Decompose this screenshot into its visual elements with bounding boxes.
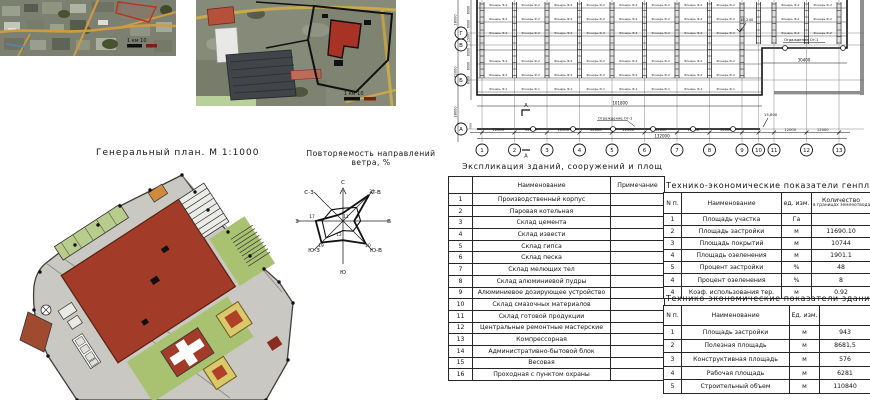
tek-building-table: N п. Наименование Ед. изм. 1Площадь заст…: [663, 305, 870, 394]
table-row: 2Полезная площадьм8681,5: [664, 339, 870, 353]
svg-text:12000: 12000: [817, 128, 829, 132]
svg-text:6000: 6000: [467, 6, 471, 14]
svg-text:101800: 101800: [612, 101, 628, 106]
table-row: 5Процент застройки%48: [664, 262, 870, 274]
table-row: 3Площадь покрытийм10744: [664, 238, 870, 250]
red-roof-building: [207, 7, 235, 26]
svg-text:Фонарь Ф-2: Фонарь Ф-2: [554, 3, 573, 7]
svg-text:6000: 6000: [467, 20, 471, 28]
svg-text:1: 1: [480, 148, 483, 154]
svg-text:Фонарь Ф-1: Фонарь Ф-1: [717, 87, 736, 91]
svg-text:Фонарь Ф-2: Фонарь Ф-2: [781, 3, 800, 7]
svg-text:Фонарь Ф-2: Фонарь Ф-2: [717, 31, 736, 35]
svg-text:Фонарь Ф-2: Фонарь Ф-2: [684, 59, 703, 63]
svg-text:Фонарь Ф-1: Фонарь Ф-1: [522, 87, 541, 91]
tek-genplan-table: N п. Наименование ед. изм. Количествов г…: [663, 192, 870, 299]
svg-text:Фонарь Ф-2: Фонарь Ф-2: [554, 59, 573, 63]
svg-text:А: А: [459, 127, 463, 133]
table-row: 1Площадь застройким943: [664, 326, 870, 340]
svg-text:Фонарь Ф-2: Фонарь Ф-2: [522, 73, 541, 77]
table-row: 7Склад мелющих тел: [449, 264, 665, 276]
svg-text:С: С: [341, 180, 345, 186]
svg-text:Фонарь Ф-2: Фонарь Ф-2: [684, 31, 703, 35]
svg-text:10: 10: [755, 148, 762, 154]
svg-text:Фонарь Ф-1: Фонарь Ф-1: [489, 87, 508, 91]
svg-text:Фонарь Ф-2: Фонарь Ф-2: [814, 31, 833, 35]
table-row: 3Конструктивная площадьм576: [664, 353, 870, 367]
svg-text:Фонарь Ф-2: Фонарь Ф-2: [717, 3, 736, 7]
svg-text:Фонарь Ф-2: Фонарь Ф-2: [554, 31, 573, 35]
table-row: 3Склад цемента: [449, 217, 665, 229]
table-row: 4Склад извести: [449, 229, 665, 241]
svg-text:13: 13: [836, 148, 843, 154]
svg-text:Фонарь Ф-2: Фонарь Ф-2: [489, 59, 508, 63]
svg-text:1 км 10: 1 км 10: [127, 38, 147, 44]
svg-text:Фонарь Ф-2: Фонарь Ф-2: [489, 3, 508, 7]
table-row: 8Склад алюминиевой пудры: [449, 275, 665, 287]
svg-text:8: 8: [708, 148, 712, 154]
svg-text:18000: 18000: [454, 106, 458, 118]
svg-text:19: 19: [318, 243, 324, 249]
drawing-sheet: 1 км 10: [0, 0, 870, 400]
svg-text:Фонарь Ф-2: Фонарь Ф-2: [684, 73, 703, 77]
table-row: 6Склад песка: [449, 252, 665, 264]
svg-text:В: В: [387, 219, 391, 225]
svg-text:9: 9: [740, 148, 744, 154]
svg-text:12: 12: [336, 232, 342, 238]
svg-text:Фонарь Ф-2: Фонарь Ф-2: [554, 17, 573, 21]
table-header: Наименование Примечание: [449, 177, 665, 194]
svg-text:18000: 18000: [454, 14, 458, 26]
table-row: 11Склад готовой продукции: [449, 310, 665, 322]
table-row: 12Центральные ремонтные мастерские: [449, 322, 665, 334]
svg-text:Фонарь Ф-1: Фонарь Ф-1: [587, 87, 606, 91]
svg-text:3: 3: [545, 148, 548, 154]
svg-text:Фонарь Ф-2: Фонарь Ф-2: [652, 31, 671, 35]
svg-text:Фонарь Ф-2: Фонарь Ф-2: [652, 3, 671, 7]
table-row: 5Склад гипса: [449, 240, 665, 252]
svg-text:Фонарь Ф-2: Фонарь Ф-2: [619, 59, 638, 63]
svg-text:Г: Г: [459, 31, 462, 37]
svg-text:11: 11: [343, 214, 349, 220]
svg-text:12000: 12000: [557, 128, 569, 132]
table-row: 4Рабочая площадьм6281: [664, 366, 870, 380]
svg-text:З: З: [295, 219, 299, 225]
svg-text:132000: 132000: [654, 133, 670, 138]
svg-text:Фонарь Ф-2: Фонарь Ф-2: [619, 3, 638, 7]
svg-text:18,240: 18,240: [740, 17, 754, 22]
table-row: 5Строительный объемм110840: [664, 380, 870, 394]
genplan-title: Генеральный план. М 1:1000: [96, 148, 259, 158]
svg-text:Фонарь Ф-2: Фонарь Ф-2: [717, 73, 736, 77]
svg-text:6000: 6000: [467, 76, 471, 84]
table-row: 1Производственный корпус: [449, 194, 665, 206]
svg-text:Ограждение Ог-1: Ограждение Ог-1: [598, 117, 632, 121]
tek-building-title: Технико-экономические показатели здани: [666, 294, 870, 303]
svg-text:Фонарь Ф-2: Фонарь Ф-2: [587, 17, 606, 21]
svg-text:6000: 6000: [467, 62, 471, 70]
svg-text:Ю-В: Ю-В: [370, 248, 382, 254]
svg-text:12000: 12000: [492, 128, 504, 132]
tek-genplan-title: Технико-экономические показатели генпла: [666, 181, 870, 190]
table-row: 9Алюминиевое дозирующее устройство: [449, 287, 665, 299]
svg-text:Фонарь Ф-2: Фонарь Ф-2: [781, 17, 800, 21]
svg-text:Фонарь Ф-1: Фонарь Ф-1: [684, 87, 703, 91]
svg-text:6000: 6000: [467, 48, 471, 56]
table-row: 4Процент озеленения%8: [664, 274, 870, 286]
table-row: 2Площадь застройким11690.10: [664, 226, 870, 238]
table-row: 4Площадь озеленениям1901.1: [664, 250, 870, 262]
svg-text:17: 17: [309, 214, 315, 220]
svg-text:Фонарь Ф-2: Фонарь Ф-2: [587, 73, 606, 77]
explication-title: Экспликация зданий, сооружений и площ: [462, 162, 663, 171]
wind-rose: СС-ВВЮ-ВЮЮ-ЗЗС-З2317117191220: [288, 172, 408, 282]
svg-text:Фонарь Ф-2: Фонарь Ф-2: [684, 17, 703, 21]
svg-text:12: 12: [803, 148, 810, 154]
svg-text:Фонарь Ф-2: Фонарь Ф-2: [814, 3, 833, 7]
svg-text:6: 6: [643, 148, 647, 154]
table-row: 14Административно-бытовой блок: [449, 345, 665, 357]
svg-text:Б: Б: [459, 78, 463, 84]
svg-text:Фонарь Ф-2: Фонарь Ф-2: [522, 59, 541, 63]
svg-text:20: 20: [365, 243, 371, 249]
svg-text:1 км 10: 1 км 10: [344, 91, 364, 97]
svg-text:4: 4: [578, 148, 582, 154]
svg-text:Фонарь Ф-2: Фонарь Ф-2: [554, 73, 573, 77]
svg-text:12000: 12000: [784, 128, 796, 132]
explication-table: Наименование Примечание 1Производственны…: [448, 176, 665, 381]
svg-text:С-З: С-З: [304, 190, 314, 196]
svg-text:Фонарь Ф-2: Фонарь Ф-2: [522, 3, 541, 7]
svg-text:7: 7: [675, 148, 678, 154]
svg-text:500: 500: [469, 123, 473, 129]
col-name: Наименование: [473, 177, 611, 194]
svg-text:Фонарь Ф-2: Фонарь Ф-2: [587, 31, 606, 35]
svg-text:Фонарь Ф-2: Фонарь Ф-2: [781, 31, 800, 35]
svg-text:Фонарь Ф-2: Фонарь Ф-2: [652, 59, 671, 63]
gas-unit: [41, 305, 51, 315]
svg-text:30400: 30400: [798, 58, 811, 63]
satellite-map-site: 1 км 10: [196, 0, 396, 106]
svg-text:Фонарь Ф-2: Фонарь Ф-2: [522, 17, 541, 21]
structural-plan: 12345678910111213АБВГ 120001200012000120…: [450, 0, 870, 158]
satellite-map-city: 1 км 10: [0, 0, 176, 56]
svg-text:23: 23: [369, 189, 375, 195]
table-row: 16Проходная с пунктом охраны: [449, 369, 665, 381]
svg-text:2: 2: [513, 148, 516, 154]
svg-text:Фонарь Ф-2: Фонарь Ф-2: [717, 59, 736, 63]
table-row: 10Склад смазочных материалов: [449, 299, 665, 311]
svg-text:Фонарь Ф-2: Фонарь Ф-2: [684, 3, 703, 7]
svg-text:1500: 1500: [467, 34, 471, 42]
svg-text:Фонарь Ф-2: Фонарь Ф-2: [619, 73, 638, 77]
svg-text:Фонарь Ф-1: Фонарь Ф-1: [554, 87, 573, 91]
svg-text:Фонарь Ф-2: Фонарь Ф-2: [652, 17, 671, 21]
svg-text:Фонарь Ф-2: Фонарь Ф-2: [587, 59, 606, 63]
svg-text:Фонарь Ф-2: Фонарь Ф-2: [489, 17, 508, 21]
svg-text:Фонарь Ф-2: Фонарь Ф-2: [717, 17, 736, 21]
svg-text:Фонарь Ф-2: Фонарь Ф-2: [814, 17, 833, 21]
svg-text:Ограждение Ог-1: Ограждение Ог-1: [784, 38, 818, 42]
wind-rose-title: Повторяемость направлений ветра, %: [296, 149, 446, 167]
table-row: 13Компрессорная: [449, 334, 665, 346]
table-row: 2Паровая котельная: [449, 205, 665, 217]
svg-text:Фонарь Ф-2: Фонарь Ф-2: [619, 31, 638, 35]
svg-text:Ю: Ю: [340, 270, 346, 276]
svg-text:Фонарь Ф-2: Фонарь Ф-2: [489, 31, 508, 35]
col-note: Примечание: [611, 177, 665, 194]
svg-text:12000: 12000: [590, 128, 602, 132]
table-header: N п. Наименование ед. изм. Количествов г…: [664, 193, 870, 214]
svg-text:Фонарь Ф-1: Фонарь Ф-1: [619, 87, 638, 91]
svg-text:А: А: [524, 154, 528, 159]
svg-text:7: 7: [357, 214, 360, 220]
svg-text:А: А: [524, 103, 528, 109]
svg-text:Фонарь Ф-2: Фонарь Ф-2: [619, 17, 638, 21]
svg-text:5: 5: [610, 148, 613, 154]
svg-text:В: В: [459, 43, 463, 49]
table-header: N п. Наименование Ед. изм.: [664, 306, 870, 326]
genplan-drawing: [0, 160, 300, 400]
svg-text:Фонарь Ф-2: Фонарь Ф-2: [522, 31, 541, 35]
svg-text:11: 11: [771, 148, 778, 154]
svg-text:12000: 12000: [622, 128, 634, 132]
svg-text:Фонарь Ф-2: Фонарь Ф-2: [489, 73, 508, 77]
svg-text:72000: 72000: [454, 66, 458, 78]
svg-text:12000: 12000: [655, 128, 667, 132]
dimensions: 1200012000120001200012000120001200012000…: [454, 0, 851, 142]
svg-text:Фонарь Ф-2: Фонарь Ф-2: [652, 73, 671, 77]
svg-text:Фонарь Ф-2: Фонарь Ф-2: [587, 3, 606, 7]
svg-text:15,800: 15,800: [764, 112, 778, 117]
svg-text:Фонарь Ф-1: Фонарь Ф-1: [652, 87, 671, 91]
table-row: 1Площадь участкаГа: [664, 214, 870, 226]
table-row: 15Весовая: [449, 357, 665, 369]
